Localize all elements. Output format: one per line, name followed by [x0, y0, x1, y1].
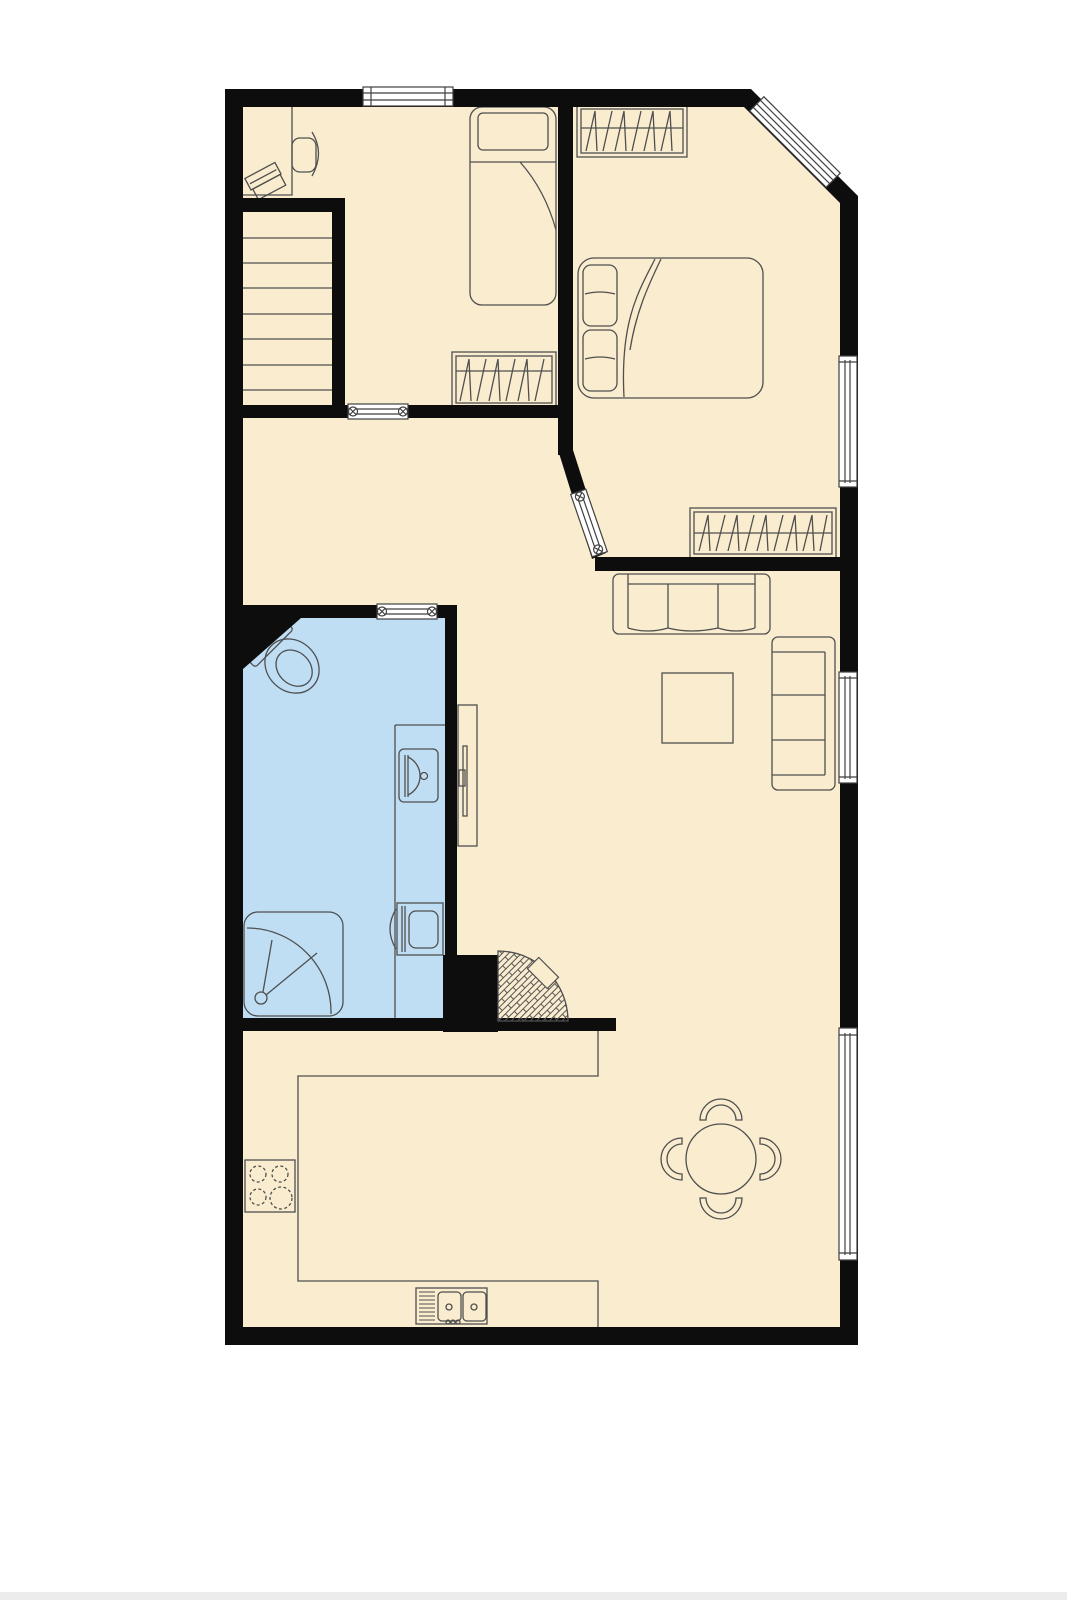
bedroom2-wall — [595, 557, 840, 571]
footer: HUSFOTOGRAF.NO Illustrasjonen er ikke en… — [0, 1400, 1067, 1592]
window — [839, 1028, 857, 1260]
bottom-strip — [0, 1592, 1067, 1600]
window — [363, 87, 453, 106]
stair-wall — [243, 198, 345, 212]
bedroom-divider-wall — [558, 107, 573, 455]
bathroom-floor — [243, 618, 445, 1018]
sliding-door — [348, 404, 408, 419]
window — [839, 672, 857, 783]
sliding-door — [377, 604, 437, 619]
bathroom-wall-right — [445, 605, 457, 955]
stair-wall — [332, 198, 345, 418]
floor-plan — [0, 0, 1067, 1600]
floorplan-page: HUSFOTOGRAF.NO Illustrasjonen er ikke en… — [0, 0, 1067, 1600]
window — [839, 356, 857, 487]
